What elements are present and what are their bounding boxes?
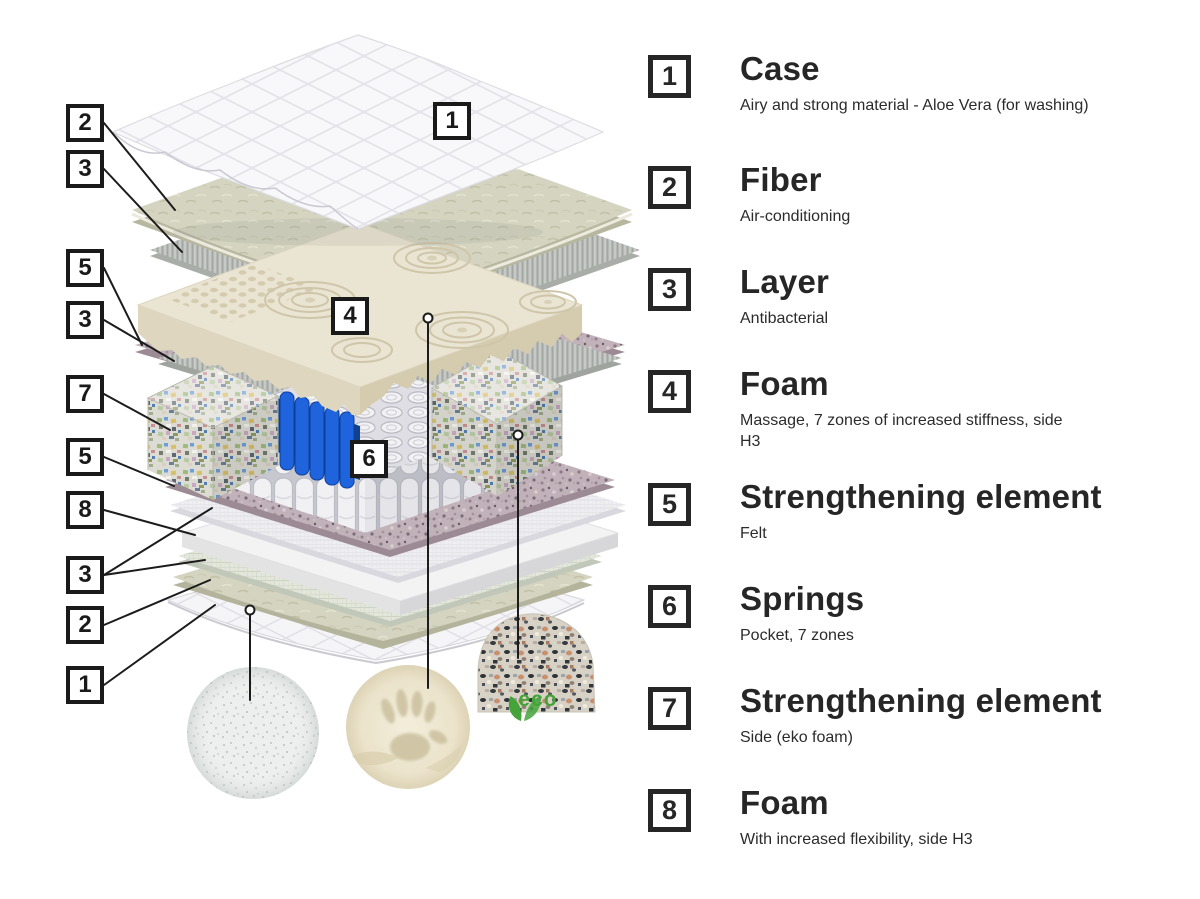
- legend-description: With increased flexibility, side H3: [740, 830, 973, 851]
- legend-number-box: 5: [648, 483, 691, 526]
- legend-number-box: 6: [648, 585, 691, 628]
- legend-number-box: 4: [648, 370, 691, 413]
- legend-description: Airy and strong material - Aloe Vera (fo…: [740, 96, 1089, 117]
- legend-description: Pocket, 7 zones: [740, 626, 864, 647]
- legend-panel: 1 Case Airy and strong material - Aloe V…: [0, 0, 1200, 899]
- legend-item-fiber: 2 Fiber Air-conditioning: [648, 162, 850, 228]
- legend-title: Layer: [740, 264, 829, 300]
- legend-item-flex-foam: 8 Foam With increased flexibility, side …: [648, 785, 973, 851]
- legend-item-side-foam: 7 Strengthening element Side (eko foam): [648, 683, 1102, 749]
- legend-title: Strengthening element: [740, 683, 1102, 719]
- mattress-infographic: 2 3 5 3 7 5 8 3 2 1 1 4 6 eco 1 Ca: [0, 0, 1200, 899]
- legend-description: Antibacterial: [740, 309, 829, 330]
- legend-title: Strengthening element: [740, 479, 1102, 515]
- legend-description: Massage, 7 zones of increased stiffness,…: [740, 411, 1070, 453]
- legend-number-box: 3: [648, 268, 691, 311]
- legend-number-box: 1: [648, 55, 691, 98]
- legend-item-springs: 6 Springs Pocket, 7 zones: [648, 581, 864, 647]
- legend-item-layer: 3 Layer Antibacterial: [648, 264, 829, 330]
- legend-title: Springs: [740, 581, 864, 617]
- legend-title: Case: [740, 51, 1089, 87]
- legend-number-box: 7: [648, 687, 691, 730]
- legend-description: Air-conditioning: [740, 207, 850, 228]
- legend-title: Foam: [740, 785, 973, 821]
- legend-title: Fiber: [740, 162, 850, 198]
- legend-description: Felt: [740, 524, 1102, 545]
- legend-number-box: 8: [648, 789, 691, 832]
- legend-description: Side (eko foam): [740, 728, 1102, 749]
- legend-item-massage-foam: 4 Foam Massage, 7 zones of increased sti…: [648, 366, 1070, 453]
- legend-number-box: 2: [648, 166, 691, 209]
- legend-item-felt: 5 Strengthening element Felt: [648, 479, 1102, 545]
- legend-title: Foam: [740, 366, 1070, 402]
- legend-item-case: 1 Case Airy and strong material - Aloe V…: [648, 51, 1089, 117]
